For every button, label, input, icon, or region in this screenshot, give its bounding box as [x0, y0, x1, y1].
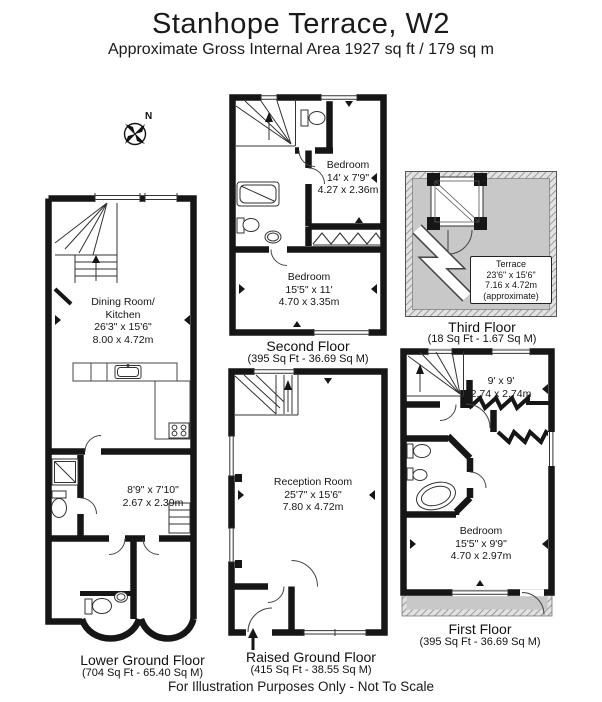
floor-name-lower-ground: Lower Ground Floor [55, 652, 230, 668]
dimension-tick [355, 217, 363, 223]
door-arcs [248, 561, 318, 633]
dimension-tick [238, 490, 244, 500]
dimension-tick [184, 315, 190, 325]
room-label-dining-kitchen: Dining Room/ Kitchen 26'3" x 15'6" 8.00 … [73, 296, 173, 346]
kitchen-sink [115, 364, 141, 379]
room-label-second-bedroom1: Bedroom 14' x 7'9" 4.27 x 2.36m [298, 159, 398, 197]
stair-arrow [92, 255, 100, 263]
compass: N [116, 103, 160, 153]
room-label-second-bedroom2: Bedroom 15'5" x 11' 4.70 x 3.35m [259, 271, 359, 309]
toilet [237, 218, 259, 233]
dimension-tick [371, 284, 377, 294]
floor-name-second: Second Floor [229, 338, 387, 354]
dimension-tick [324, 378, 332, 384]
floorplan-sheet: Stanhope Terrace, W2 Approximate Gross I… [0, 0, 602, 702]
toilet [52, 491, 67, 518]
room-label-first-room: 9' x 9' 2.74 x 2.74m [451, 375, 551, 400]
floor-area-raised-ground: (415 Sq Ft - 38.55 Sq M) [228, 664, 394, 676]
stepped-walls [469, 398, 551, 442]
room-label-reception: Reception Room 25'7" x 15'6" 7.80 x 4.72… [263, 476, 363, 514]
hob [169, 423, 189, 438]
sink [265, 231, 281, 243]
floor-name-raised-ground: Raised Ground Floor [228, 649, 394, 665]
disclaimer-text: For Illustration Purposes Only - Not To … [0, 679, 602, 694]
terrace-label-box: Terrace 23'6" x 15'6" 7.16 x 4.72m (appr… [470, 256, 552, 304]
shower [52, 459, 78, 485]
staircase [236, 99, 296, 146]
compass-icon: N [116, 103, 160, 153]
room-label-store: 8'9" x 7'10" 2.67 x 2.39m [103, 484, 203, 509]
walls [49, 199, 194, 639]
dimension-tick [476, 580, 484, 586]
bathtub [413, 477, 459, 514]
page-subtitle: Approximate Gross Internal Area 1927 sq … [0, 41, 602, 59]
wc-toilet [301, 110, 325, 126]
dimension-tick [542, 539, 548, 549]
bidet [407, 468, 427, 481]
floor-area-lower-ground: (704 Sq Ft - 65.40 Sq M) [55, 667, 230, 679]
floor-name-first: First Floor [400, 621, 560, 637]
lower-ground-floor-plan [45, 193, 205, 655]
windows [95, 193, 177, 202]
dimension-tick [293, 321, 301, 327]
wardrobe [313, 233, 381, 245]
dimension-tick [55, 315, 61, 325]
stair-arrow [284, 380, 292, 390]
room-label-first-bedroom: Bedroom 15'5" x 9'9" 4.70 x 2.97m [431, 525, 531, 563]
staircase [235, 375, 298, 415]
bathtub [237, 182, 279, 206]
page-title: Stanhope Terrace, W2 [0, 8, 602, 41]
floor-area-second: (395 Sq Ft - 36.69 Sq M) [229, 353, 387, 365]
dimension-tick [410, 539, 416, 549]
dimension-tick [239, 284, 245, 294]
dimension-tick [345, 101, 353, 107]
toilet [407, 444, 431, 458]
dimension-tick [369, 490, 375, 500]
staircase [55, 203, 117, 283]
compass-north-label: N [145, 111, 152, 122]
stair-arrow [416, 364, 424, 374]
stair-head-structure [427, 173, 487, 230]
floor-area-first: (395 Sq Ft - 36.69 Sq M) [400, 636, 560, 648]
floor-area-third: (18 Sq Ft - 1.67 Sq M) [405, 333, 559, 345]
